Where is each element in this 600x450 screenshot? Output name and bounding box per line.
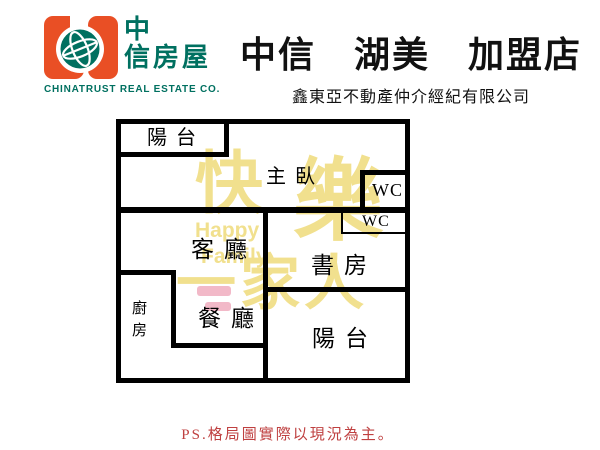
wall-balcony-top-bottom [121,152,229,157]
wall-wc1-top [360,170,405,175]
room-wc-top: WC [372,181,403,199]
footer-disclaimer: PS.格局圖實際以現況為主。 [138,423,438,444]
room-balcony-bottom: 陽台 [312,327,378,350]
wall-study-balcony-divider [263,287,405,292]
room-kitchen: 廚房 [130,300,145,344]
company-subtitle: 鑫東亞不動產仲介經紀有限公司 [230,83,592,107]
wall-balcony-top-right [224,124,229,157]
logo-chinese-name: 中 信房屋 [124,16,211,72]
wall-wc1-left [360,170,365,210]
room-dining: 餐廳 [198,307,264,330]
header-title-block: 中信 湖美 加盟店 鑫東亞不動產仲介經紀有限公司 [230,26,592,107]
watermark-pink-fragment [197,286,231,296]
wall-kitchen-top [121,270,176,275]
wall-kitchen-right [171,270,176,348]
logo-english-name: CHINATRUST REAL ESTATE CO. [44,84,234,95]
company-logo: 中 信房屋 CHINATRUST REAL ESTATE CO. [44,16,234,95]
wall-dining-bottom [171,343,268,348]
room-living: 客廳 [191,238,257,261]
floor-plan: 快 樂 Happy Family 一家人 陽台 主臥 WC WC 客廳 書房 餐… [116,119,410,383]
logo-chinese-line1: 中 [124,16,211,44]
chinatrust-logo-icon [44,16,118,80]
logo-chinese-line2: 信房屋 [124,44,211,72]
wall-center-vertical [263,207,268,378]
room-balcony-top: 陽台 [147,128,205,148]
store-title: 中信 湖美 加盟店 [230,26,592,78]
room-study: 書房 [311,254,377,277]
room-master-bedroom: 主臥 [266,167,324,187]
room-wc-mid: WC [362,214,390,230]
